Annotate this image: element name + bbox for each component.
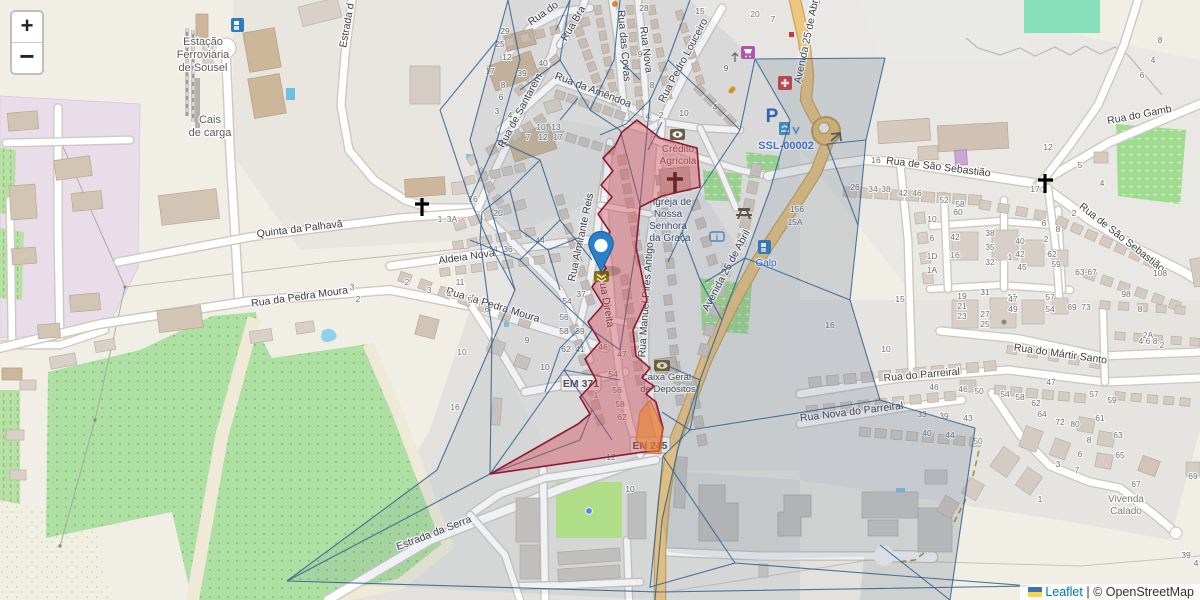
svg-text:2: 2 [356,294,361,304]
svg-text:39: 39 [1181,550,1191,560]
svg-text:59: 59 [1051,259,1061,269]
svg-text:2: 2 [405,277,410,287]
svg-text:21: 21 [957,301,967,311]
svg-text:15: 15 [895,294,905,304]
svg-text:4: 4 [1151,55,1156,65]
svg-text:42: 42 [950,232,960,242]
svg-text:2: 2 [1044,234,1049,244]
svg-text:2: 2 [1160,340,1165,350]
svg-text:72: 72 [1055,417,1065,427]
svg-text:1A: 1A [927,265,938,275]
svg-text:1D: 1D [927,251,938,261]
svg-text:59: 59 [1107,395,1117,405]
svg-text:4 6 8: 4 6 8 [1139,336,1158,346]
svg-text:50: 50 [973,436,983,446]
svg-text:5: 5 [1078,160,1083,170]
svg-text:10: 10 [927,214,937,224]
svg-text:38: 38 [881,184,891,194]
svg-text:67: 67 [1131,479,1141,489]
svg-text:16: 16 [871,155,881,165]
svg-text:6: 6 [1140,70,1145,80]
svg-text:60: 60 [953,207,963,217]
svg-text:42: 42 [1015,249,1025,259]
svg-text:62: 62 [1031,398,1041,408]
svg-text:6: 6 [1078,449,1083,459]
svg-text:Ferroviária: Ferroviária [177,49,230,61]
svg-text:38: 38 [985,228,995,238]
svg-text:3A: 3A [447,214,458,224]
svg-text:58: 58 [1015,392,1025,402]
svg-text:50: 50 [974,386,984,396]
svg-text:Cais: Cais [199,114,222,126]
svg-text:65: 65 [1115,450,1125,460]
svg-text:46: 46 [958,384,968,394]
svg-text:61: 61 [1095,413,1105,423]
svg-text:Vivenda: Vivenda [1108,494,1144,505]
svg-text:62: 62 [1047,249,1057,259]
svg-text:23: 23 [957,311,967,321]
svg-text:46: 46 [912,188,922,198]
svg-text:3: 3 [1056,459,1061,469]
svg-text:6: 6 [930,233,935,243]
svg-text:4: 4 [447,289,452,299]
svg-text:31: 31 [980,287,990,297]
svg-text:42: 42 [898,188,908,198]
svg-text:25: 25 [980,319,990,329]
svg-text:2: 2 [1072,208,1077,218]
svg-text:11: 11 [456,277,465,287]
svg-text:73: 73 [1081,302,1091,312]
svg-text:63: 63 [1113,430,1123,440]
svg-text:32: 32 [985,257,995,267]
svg-text:35: 35 [985,242,995,252]
svg-text:27: 27 [980,309,990,319]
svg-text:1: 1 [438,214,443,224]
svg-text:34: 34 [868,184,878,194]
svg-text:de Sousel: de Sousel [179,62,228,74]
svg-text:63-67: 63-67 [1075,267,1097,277]
svg-text:16: 16 [950,250,960,260]
svg-text:1: 1 [1008,252,1013,262]
svg-text:19: 19 [957,291,967,301]
svg-text:8: 8 [1158,35,1163,45]
svg-text:43: 43 [963,413,973,423]
svg-text:4: 4 [1194,558,1199,568]
svg-text:20: 20 [750,9,760,19]
svg-text:16: 16 [450,402,460,412]
svg-text:46: 46 [929,382,939,392]
svg-text:98: 98 [1121,289,1131,299]
svg-text:57: 57 [1045,292,1055,302]
svg-text:8: 8 [1056,224,1061,234]
svg-text:1: 1 [1038,494,1043,504]
svg-text:47: 47 [1046,377,1056,387]
svg-text:64: 64 [1037,409,1047,419]
svg-text:69: 69 [1067,302,1077,312]
svg-text:108: 108 [1153,268,1167,278]
svg-text:54: 54 [1000,389,1010,399]
svg-text:69: 69 [1188,471,1198,481]
svg-text:80: 80 [1070,419,1080,429]
svg-text:5: 5 [468,295,473,305]
svg-text:6: 6 [1042,218,1047,228]
svg-text:4: 4 [1100,178,1105,188]
svg-text:47: 47 [1008,294,1018,304]
svg-text:3: 3 [427,285,432,295]
svg-text:7: 7 [771,14,776,24]
svg-text:54: 54 [1045,304,1055,314]
svg-text:Calado: Calado [1110,506,1142,517]
svg-text:7: 7 [1075,465,1080,475]
svg-text:17: 17 [1030,184,1040,194]
svg-text:57: 57 [1089,389,1099,399]
svg-text:10: 10 [457,347,467,357]
svg-text:52: 52 [939,195,949,205]
svg-text:40: 40 [1015,236,1025,246]
svg-text:de carga: de carga [189,127,233,139]
svg-text:8: 8 [1138,304,1143,314]
svg-text:45: 45 [1017,262,1027,272]
svg-text:3: 3 [350,282,355,292]
svg-text:49: 49 [1008,304,1018,314]
svg-text:Estação: Estação [183,36,223,48]
svg-text:12: 12 [1043,142,1053,152]
svg-text:10: 10 [881,344,891,354]
svg-text:8: 8 [1087,435,1092,445]
